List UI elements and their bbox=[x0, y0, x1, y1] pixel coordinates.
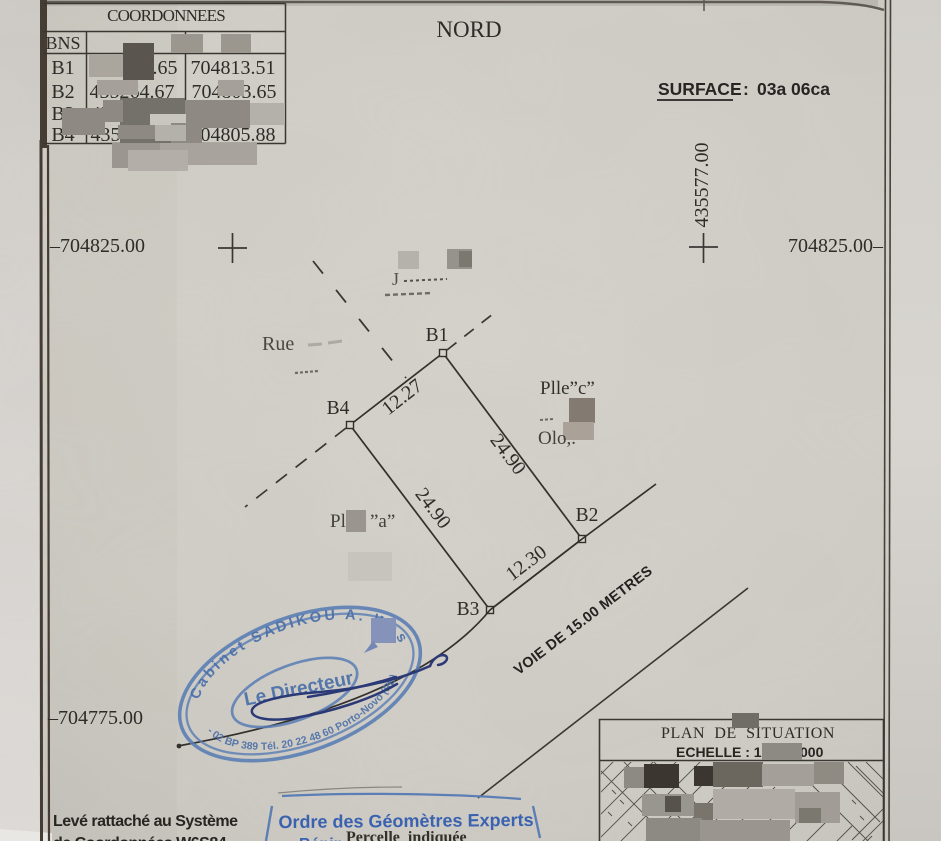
svg-text:–704825.00: –704825.00 bbox=[49, 235, 145, 257]
svg-text:Levé rattaché au Système: Levé rattaché au Système bbox=[53, 813, 238, 830]
svg-text:B3: B3 bbox=[457, 599, 480, 620]
svg-text:BNS: BNS bbox=[45, 33, 80, 53]
svg-text:Rue: Rue bbox=[262, 333, 294, 355]
svg-text:SURFACE: SURFACE bbox=[658, 79, 742, 99]
svg-text:B2: B2 bbox=[51, 81, 74, 103]
svg-text:B1: B1 bbox=[426, 325, 449, 346]
svg-text:Plle”c”: Plle”c” bbox=[540, 378, 595, 399]
svg-text:Bénin: Bénin bbox=[299, 836, 343, 841]
svg-text:704825.00–: 704825.00– bbox=[788, 235, 884, 257]
svg-text:ECHELLE : 1: ECHELLE : 1 bbox=[676, 744, 762, 760]
svg-text:B2: B2 bbox=[576, 505, 599, 526]
svg-text:–704775.00: –704775.00 bbox=[47, 707, 143, 729]
svg-text:704813.51: 704813.51 bbox=[191, 57, 276, 79]
svg-text:COORDONNEES: COORDONNEES bbox=[107, 6, 225, 25]
svg-text:B1: B1 bbox=[51, 57, 74, 79]
svg-text:”a”: ”a” bbox=[370, 511, 395, 532]
svg-text:B4: B4 bbox=[327, 398, 350, 419]
svg-text:000: 000 bbox=[800, 744, 824, 760]
svg-text:435577.00: 435577.00 bbox=[691, 143, 713, 228]
svg-text:Pl: Pl bbox=[330, 511, 346, 532]
svg-text:Olo,.: Olo,. bbox=[538, 428, 576, 449]
svg-text:Percelle indiquée: Percelle indiquée bbox=[346, 829, 467, 841]
svg-text:NORD: NORD bbox=[436, 17, 501, 42]
svg-text:de Coordonnées W6S84: de Coordonnées W6S84 bbox=[53, 835, 227, 841]
svg-text:J: J bbox=[392, 269, 399, 289]
svg-text::: : bbox=[743, 79, 749, 99]
svg-text:03a 06ca: 03a 06ca bbox=[757, 79, 830, 99]
